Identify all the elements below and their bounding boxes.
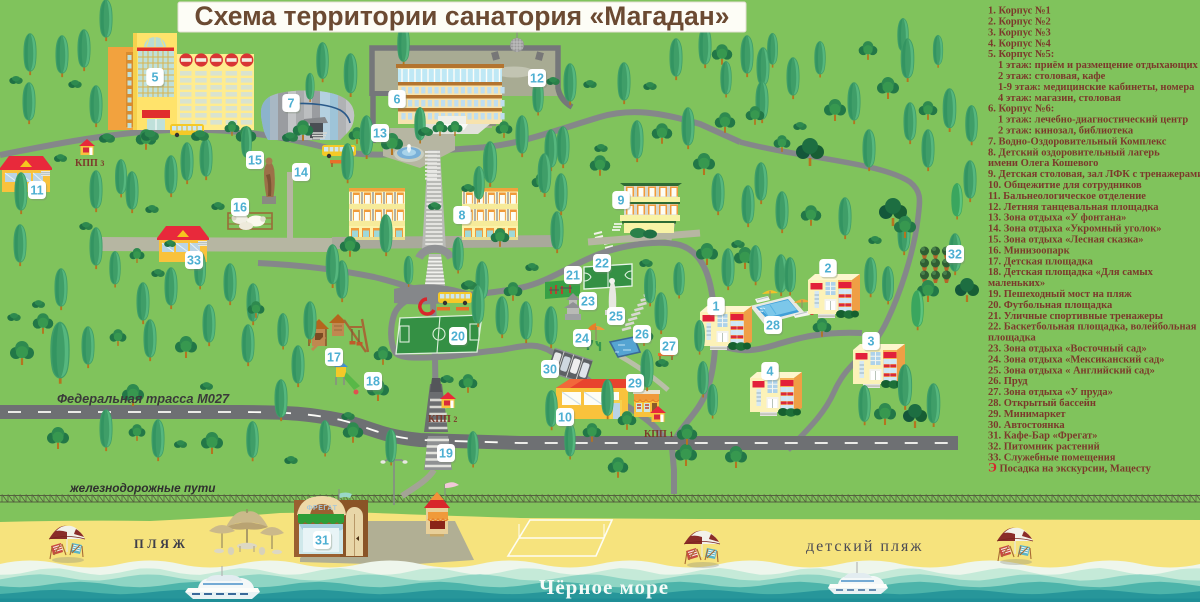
svg-text:33. Служебные помещения: 33. Служебные помещения [988,453,1116,464]
svg-text:10: 10 [558,411,572,425]
svg-text:20: 20 [451,330,465,344]
svg-text:Чёрное море: Чёрное море [539,575,669,599]
svg-text:имени Олега Кошевого: имени Олега Кошевого [988,158,1098,169]
svg-text:КПП 2: КПП 2 [428,414,457,425]
svg-text:32: 32 [948,248,962,262]
svg-text:КПП 1: КПП 1 [644,429,673,440]
svg-text:детский пляж: детский пляж [806,538,923,555]
svg-text:19: 19 [439,447,453,461]
svg-text:1. Корпус №1: 1. Корпус №1 [988,6,1051,17]
svg-text:14. Зона отдыха «Укромный угол: 14. Зона отдыха «Укромный уголок» [988,224,1162,235]
svg-text:21: 21 [566,269,580,283]
svg-text:9. Детская столовая, зал ЛФК с: 9. Детская столовая, зал ЛФК с тренажера… [988,169,1200,180]
svg-text:2: 2 [825,262,832,276]
svg-text:24. Зона отдыха «Мексиканский: 24. Зона отдыха «Мексиканский сад» [988,354,1165,365]
svg-text:7. Водно-Оздоровительный Компл: 7. Водно-Оздоровительный Комплекс [988,136,1167,147]
svg-text:11: 11 [30,184,43,198]
svg-text:Федеральная трасса М027: Федеральная трасса М027 [57,391,230,406]
svg-text:18: 18 [366,375,380,389]
svg-text:1: 1 [713,300,720,314]
svg-text:Схема территории санатория «Ма: Схема территории санатория «Магадан» [195,1,730,31]
svg-text:7: 7 [288,97,295,111]
svg-text:28: 28 [766,319,780,333]
svg-text:12: 12 [530,72,544,86]
svg-text:6: 6 [394,93,401,107]
svg-text:2. Корпус №2: 2. Корпус №2 [988,17,1051,28]
svg-text:13. Зона отдыха «У фонтана»: 13. Зона отдыха «У фонтана» [988,213,1126,224]
svg-text:29: 29 [628,377,642,391]
svg-text:25. Зона отдыха « Английский с: 25. Зона отдыха « Английский сад» [988,365,1155,376]
svg-text:5. Корпус №5:: 5. Корпус №5: [988,49,1054,60]
svg-text:31: 31 [315,534,329,548]
svg-text:26. Пруд: 26. Пруд [988,376,1028,387]
svg-text:9: 9 [618,194,625,208]
svg-text:8. Детский оздоровительный лаг: 8. Детский оздоровительный лагерь [988,147,1160,158]
svg-text:16. Минизоопарк: 16. Минизоопарк [988,245,1071,256]
svg-text:30: 30 [543,363,557,377]
svg-text:23. Зона отдыха «Восточный сад: 23. Зона отдыха «Восточный сад» [988,344,1147,355]
svg-text:22. Баскетбольная площадка, во: 22. Баскетбольная площадка, волейбольная [988,322,1197,333]
svg-text:8: 8 [459,209,466,223]
svg-text:30. Автостоянка: 30. Автостоянка [988,420,1065,431]
svg-text:12. Летняя танцевальная площад: 12. Летняя танцевальная площадка [988,202,1159,213]
svg-text:5: 5 [152,71,159,85]
svg-text:3. Корпус №3: 3. Корпус №3 [988,27,1051,38]
svg-text:32. Питомник растений: 32. Питомник растений [988,442,1100,453]
svg-text:площадка: площадка [988,333,1037,344]
svg-text:25: 25 [609,310,623,324]
svg-text:29. Минимаркет: 29. Минимаркет [988,409,1066,420]
svg-text:13: 13 [373,127,387,141]
svg-text:23: 23 [581,295,595,309]
svg-text:27. Зона отдыха «У пруда»: 27. Зона отдыха «У пруда» [988,387,1113,398]
svg-text:ФРЕГАТ: ФРЕГАТ [307,505,338,512]
svg-text:14: 14 [294,166,308,180]
svg-text:ПЛЯЖ: ПЛЯЖ [134,537,188,551]
svg-text:24: 24 [575,332,589,346]
svg-text:6. Корпус №6:: 6. Корпус №6: [988,104,1054,115]
svg-text:17: 17 [327,351,341,365]
svg-text:18. Детская площадка «Для самы: 18. Детская площадка «Для самых [988,267,1154,278]
svg-text:КПП 3: КПП 3 [75,158,104,169]
svg-text:железнодорожные пути: железнодорожные пути [69,481,215,495]
svg-text:2 этаж: столовая, кафе: 2 этаж: столовая, кафе [998,71,1106,82]
svg-text:27: 27 [662,340,676,354]
svg-text:11. Бальнеологическое отделени: 11. Бальнеологическое отделение [988,191,1146,202]
svg-text:21. Уличные спортивные тренаже: 21. Уличные спортивные тренажеры [988,311,1163,322]
svg-text:1 этаж: приём и размещение отд: 1 этаж: приём и размещение отдыхающих [998,60,1199,71]
svg-text:28. Открытый бассейн: 28. Открытый бассейн [988,398,1096,409]
svg-text:16: 16 [233,201,247,215]
svg-text:33: 33 [187,254,201,268]
svg-text:маленьких»: маленьких» [988,278,1045,289]
svg-text:3: 3 [868,335,875,349]
svg-text:31. Кафе-Бар «Фрегат»: 31. Кафе-Бар «Фрегат» [988,431,1097,442]
svg-text:20. Футбольная площадка: 20. Футбольная площадка [988,300,1113,311]
svg-text:19. Пешеходный мост на пляж: 19. Пешеходный мост на пляж [988,289,1132,300]
svg-text:1-9 этаж: медицинские кабинеты: 1-9 этаж: медицинские кабинеты, номера [998,82,1195,93]
svg-text:4 этаж: магазин, столовая: 4 этаж: магазин, столовая [998,93,1121,104]
svg-text:15: 15 [248,154,262,168]
svg-text:10. Общежитие для сотрудников: 10. Общежитие для сотрудников [988,180,1142,191]
svg-text:4. Корпус №4: 4. Корпус №4 [988,38,1051,49]
svg-text:15. Зона отдыха «Лесная сказка: 15. Зона отдыха «Лесная сказка» [988,235,1144,246]
svg-text:17. Детская площадка: 17. Детская площадка [988,256,1094,267]
svg-text:1 этаж: лечебно-диагностически: 1 этаж: лечебно-диагностический центр [998,115,1188,126]
svg-text:2 этаж: кинозал, библиотека: 2 этаж: кинозал, библиотека [998,126,1134,137]
svg-text:22: 22 [595,257,609,271]
svg-text:4: 4 [767,365,774,379]
svg-text:26: 26 [635,328,649,342]
